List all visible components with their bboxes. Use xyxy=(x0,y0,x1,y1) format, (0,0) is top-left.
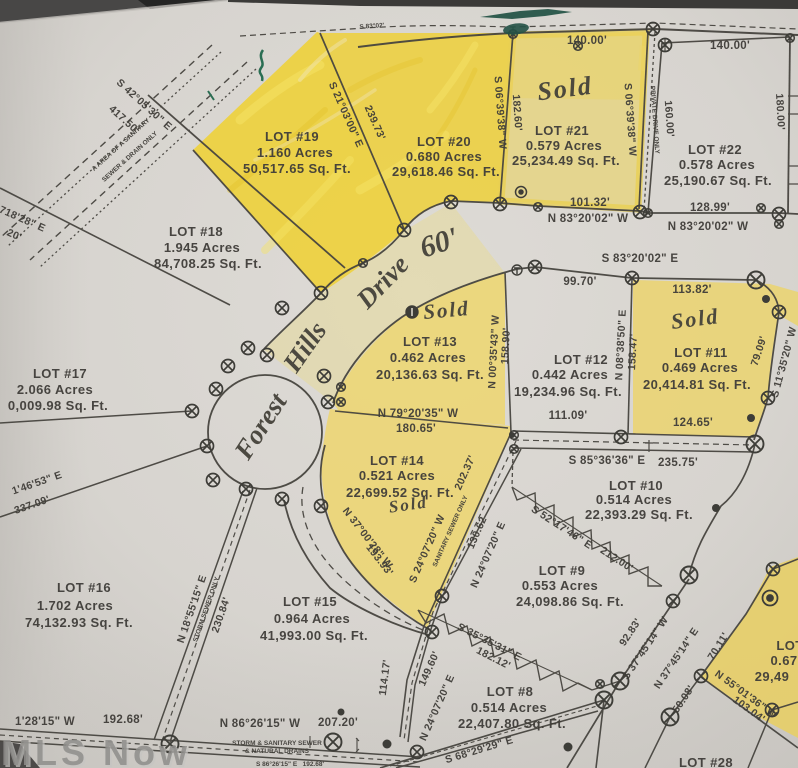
svg-text:N 83°20'02" W: N 83°20'02" W xyxy=(668,221,749,233)
svg-text:29,618.46 Sq. Ft.: 29,618.46 Sq. Ft. xyxy=(392,164,500,179)
svg-text:2.066 Acres: 2.066 Acres xyxy=(17,382,93,397)
svg-text:LOT #12: LOT #12 xyxy=(554,352,608,367)
svg-text:LOT #14: LOT #14 xyxy=(370,453,424,468)
svg-text:192.68': 192.68' xyxy=(103,714,143,726)
svg-text:S 86°26'15" E 192.68': S 86°26'15" E 192.68' xyxy=(256,760,324,768)
svg-text:160.00': 160.00' xyxy=(662,100,677,137)
svg-text:124.65': 124.65' xyxy=(673,417,713,429)
svg-text:0.462 Acres: 0.462 Acres xyxy=(390,350,466,365)
svg-text:0,009.98 Sq. Ft.: 0,009.98 Sq. Ft. xyxy=(8,398,108,413)
svg-text:84,708.25 Sq. Ft.: 84,708.25 Sq. Ft. xyxy=(154,256,262,271)
svg-text:STORM & SANITARY SEWER: STORM & SANITARY SEWER xyxy=(232,740,322,747)
svg-text:S 85°36'36" E: S 85°36'36" E xyxy=(569,455,646,467)
svg-text:207.20': 207.20' xyxy=(318,717,358,729)
svg-text:180.65': 180.65' xyxy=(396,423,436,435)
svg-text:N 86°26'15" W: N 86°26'15" W xyxy=(220,718,301,730)
svg-text:0.469 Acres: 0.469 Acres xyxy=(662,360,738,375)
svg-text:20,414.81 Sq. Ft.: 20,414.81 Sq. Ft. xyxy=(643,377,751,392)
svg-text:25,190.67 Sq. Ft.: 25,190.67 Sq. Ft. xyxy=(664,173,772,188)
svg-text:& NATURAL DRAINS: & NATURAL DRAINS xyxy=(245,748,310,755)
svg-text:LOT #16: LOT #16 xyxy=(57,580,111,595)
svg-text:LOT: LOT xyxy=(776,638,798,653)
svg-text:Sold: Sold xyxy=(422,296,470,324)
svg-text:101.32': 101.32' xyxy=(570,197,610,209)
svg-text:158.47': 158.47' xyxy=(626,333,640,370)
svg-text:LOT #13: LOT #13 xyxy=(403,334,457,349)
svg-text:0.514 Acres: 0.514 Acres xyxy=(471,700,547,715)
svg-text:50,517.65 Sq. Ft.: 50,517.65 Sq. Ft. xyxy=(243,161,351,176)
svg-text:0.521 Acres: 0.521 Acres xyxy=(359,468,435,483)
svg-text:140.00': 140.00' xyxy=(710,40,750,52)
svg-text:LOT #10: LOT #10 xyxy=(609,478,663,493)
svg-text:1.945 Acres: 1.945 Acres xyxy=(164,240,240,255)
svg-text:LOT #20: LOT #20 xyxy=(417,134,471,149)
svg-text:182.60': 182.60' xyxy=(510,94,525,131)
svg-text:0.680 Acres: 0.680 Acres xyxy=(406,149,482,164)
svg-text:25,234.49 Sq. Ft.: 25,234.49 Sq. Ft. xyxy=(512,153,620,168)
svg-text:LOT #21: LOT #21 xyxy=(535,123,589,138)
svg-text:S 83°20'02" E: S 83°20'02" E xyxy=(602,253,679,265)
svg-text:LOT #19: LOT #19 xyxy=(265,129,319,144)
svg-text:0.553 Acres: 0.553 Acres xyxy=(522,578,598,593)
svg-text:22,407.80 Sq. Ft.: 22,407.80 Sq. Ft. xyxy=(458,716,566,731)
svg-text:LOT #8: LOT #8 xyxy=(487,684,533,699)
svg-text:24,098.86 Sq. Ft.: 24,098.86 Sq. Ft. xyxy=(516,594,624,609)
svg-text:1.160 Acres: 1.160 Acres xyxy=(257,145,333,160)
svg-text:1.702 Acres: 1.702 Acres xyxy=(37,598,113,613)
svg-text:LOT #28: LOT #28 xyxy=(679,755,733,768)
svg-text:0.579 Acres: 0.579 Acres xyxy=(526,138,602,153)
svg-text:113.82': 113.82' xyxy=(672,284,711,296)
svg-text:19,234.96 Sq. Ft.: 19,234.96 Sq. Ft. xyxy=(514,384,622,399)
svg-text:180.00': 180.00' xyxy=(773,93,787,130)
svg-text:LOT #11: LOT #11 xyxy=(674,345,727,360)
svg-text:22,393.29 Sq. Ft.: 22,393.29 Sq. Ft. xyxy=(585,507,693,522)
svg-text:0.514 Acres: 0.514 Acres xyxy=(596,492,672,507)
svg-text:LOT #15: LOT #15 xyxy=(283,594,337,609)
svg-text:0.442 Acres: 0.442 Acres xyxy=(532,367,608,382)
svg-text:74,132.93 Sq. Ft.: 74,132.93 Sq. Ft. xyxy=(25,615,133,630)
svg-text:235.75': 235.75' xyxy=(658,457,698,469)
svg-text:41,993.00 Sq. Ft.: 41,993.00 Sq. Ft. xyxy=(260,628,368,643)
svg-text:LOT #18: LOT #18 xyxy=(169,224,223,239)
svg-text:29,49: 29,49 xyxy=(755,669,790,684)
svg-text:LOT #17: LOT #17 xyxy=(33,366,87,381)
svg-text:1'28'15" W: 1'28'15" W xyxy=(15,716,75,728)
svg-text:LOT #22: LOT #22 xyxy=(688,142,742,157)
svg-text:0.67: 0.67 xyxy=(771,653,798,668)
svg-text:N 83°20'02" W: N 83°20'02" W xyxy=(548,213,629,225)
svg-text:LOT #9: LOT #9 xyxy=(539,563,585,578)
svg-text:158.90': 158.90' xyxy=(499,327,513,364)
svg-text:20,136.63 Sq. Ft.: 20,136.63 Sq. Ft. xyxy=(376,367,484,382)
svg-text:0.964 Acres: 0.964 Acres xyxy=(274,611,350,626)
svg-text:99.70': 99.70' xyxy=(563,276,596,288)
svg-text:140.00': 140.00' xyxy=(567,35,607,47)
svg-text:MLS Now: MLS Now xyxy=(1,732,191,768)
svg-text:0.578 Acres: 0.578 Acres xyxy=(679,157,755,172)
svg-text:N 79°20'35" W: N 79°20'35" W xyxy=(378,408,459,420)
svg-text:111.09': 111.09' xyxy=(549,410,588,422)
svg-text:128.99': 128.99' xyxy=(690,202,730,214)
